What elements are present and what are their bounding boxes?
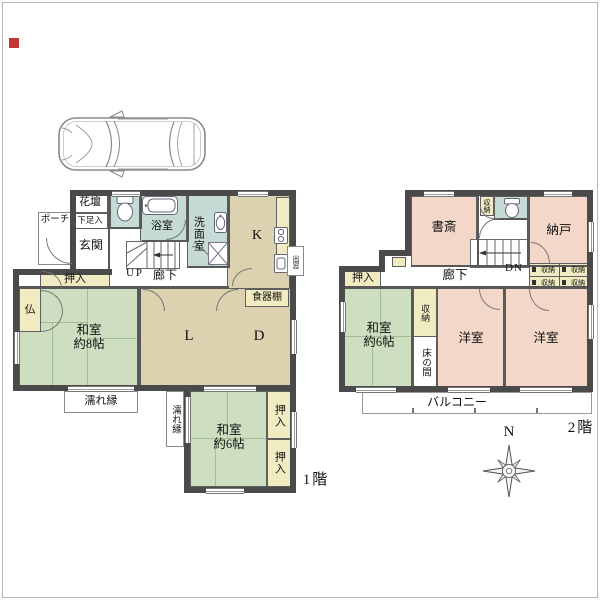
wall-segment	[587, 190, 593, 392]
window	[520, 387, 572, 393]
window	[544, 191, 572, 197]
storage-v-label: 収納	[416, 293, 434, 333]
storage-door-mark	[532, 267, 536, 272]
wall-segment	[494, 218, 529, 220]
toilet-icon	[502, 198, 522, 218]
western-room-b-label: 洋室	[529, 330, 563, 346]
storage-wc-label: 収納	[481, 197, 493, 215]
japanese-room-6-2f-label: 和室約6帖	[352, 318, 406, 352]
wall-segment	[477, 196, 479, 267]
storage-grid-label: 収納	[567, 264, 589, 276]
door-arc	[479, 218, 499, 238]
bay-window-label: 出窓	[290, 250, 302, 274]
storage-grid-label: 収納	[537, 277, 559, 289]
wall-segment	[503, 288, 505, 387]
window	[588, 305, 594, 339]
closet-west-2f-label: 押入	[347, 271, 379, 286]
window	[340, 302, 346, 332]
balcony-railing-tick	[536, 408, 538, 413]
floor2-caption: 2階	[564, 420, 598, 438]
storage-door-mark	[562, 267, 566, 272]
storeroom-label: 納戸	[543, 222, 575, 238]
balcony-railing-tick	[412, 408, 414, 413]
window	[588, 222, 594, 252]
balcony-label: バルコニー	[420, 395, 494, 410]
storage-grid-label: 収納	[567, 277, 589, 289]
wall-segment	[527, 196, 529, 267]
stairs-down-label: DN	[500, 262, 528, 275]
study-label: 書斎	[427, 219, 461, 235]
storage-grid-label: 収納	[537, 264, 559, 276]
tokonoma-label: 床の間	[414, 340, 435, 384]
hallway-2f-label: 廊下	[438, 268, 472, 283]
compass-rose-icon	[481, 443, 537, 499]
window	[424, 191, 454, 197]
compass-north-label: N	[499, 423, 519, 442]
hall-small-box	[392, 257, 406, 267]
window	[448, 387, 490, 393]
floor2-plan: 書斎 収納 納戸 押入 廊下 DN 収納 収納 収納 収納 和室約6帖 収納 床…	[0, 0, 600, 600]
storage-door-mark	[532, 280, 536, 285]
window	[356, 387, 396, 393]
storage-door-mark	[562, 280, 566, 285]
wall-segment	[411, 288, 413, 387]
western-room-a-label: 洋室	[454, 330, 488, 346]
wall-segment	[405, 190, 411, 256]
